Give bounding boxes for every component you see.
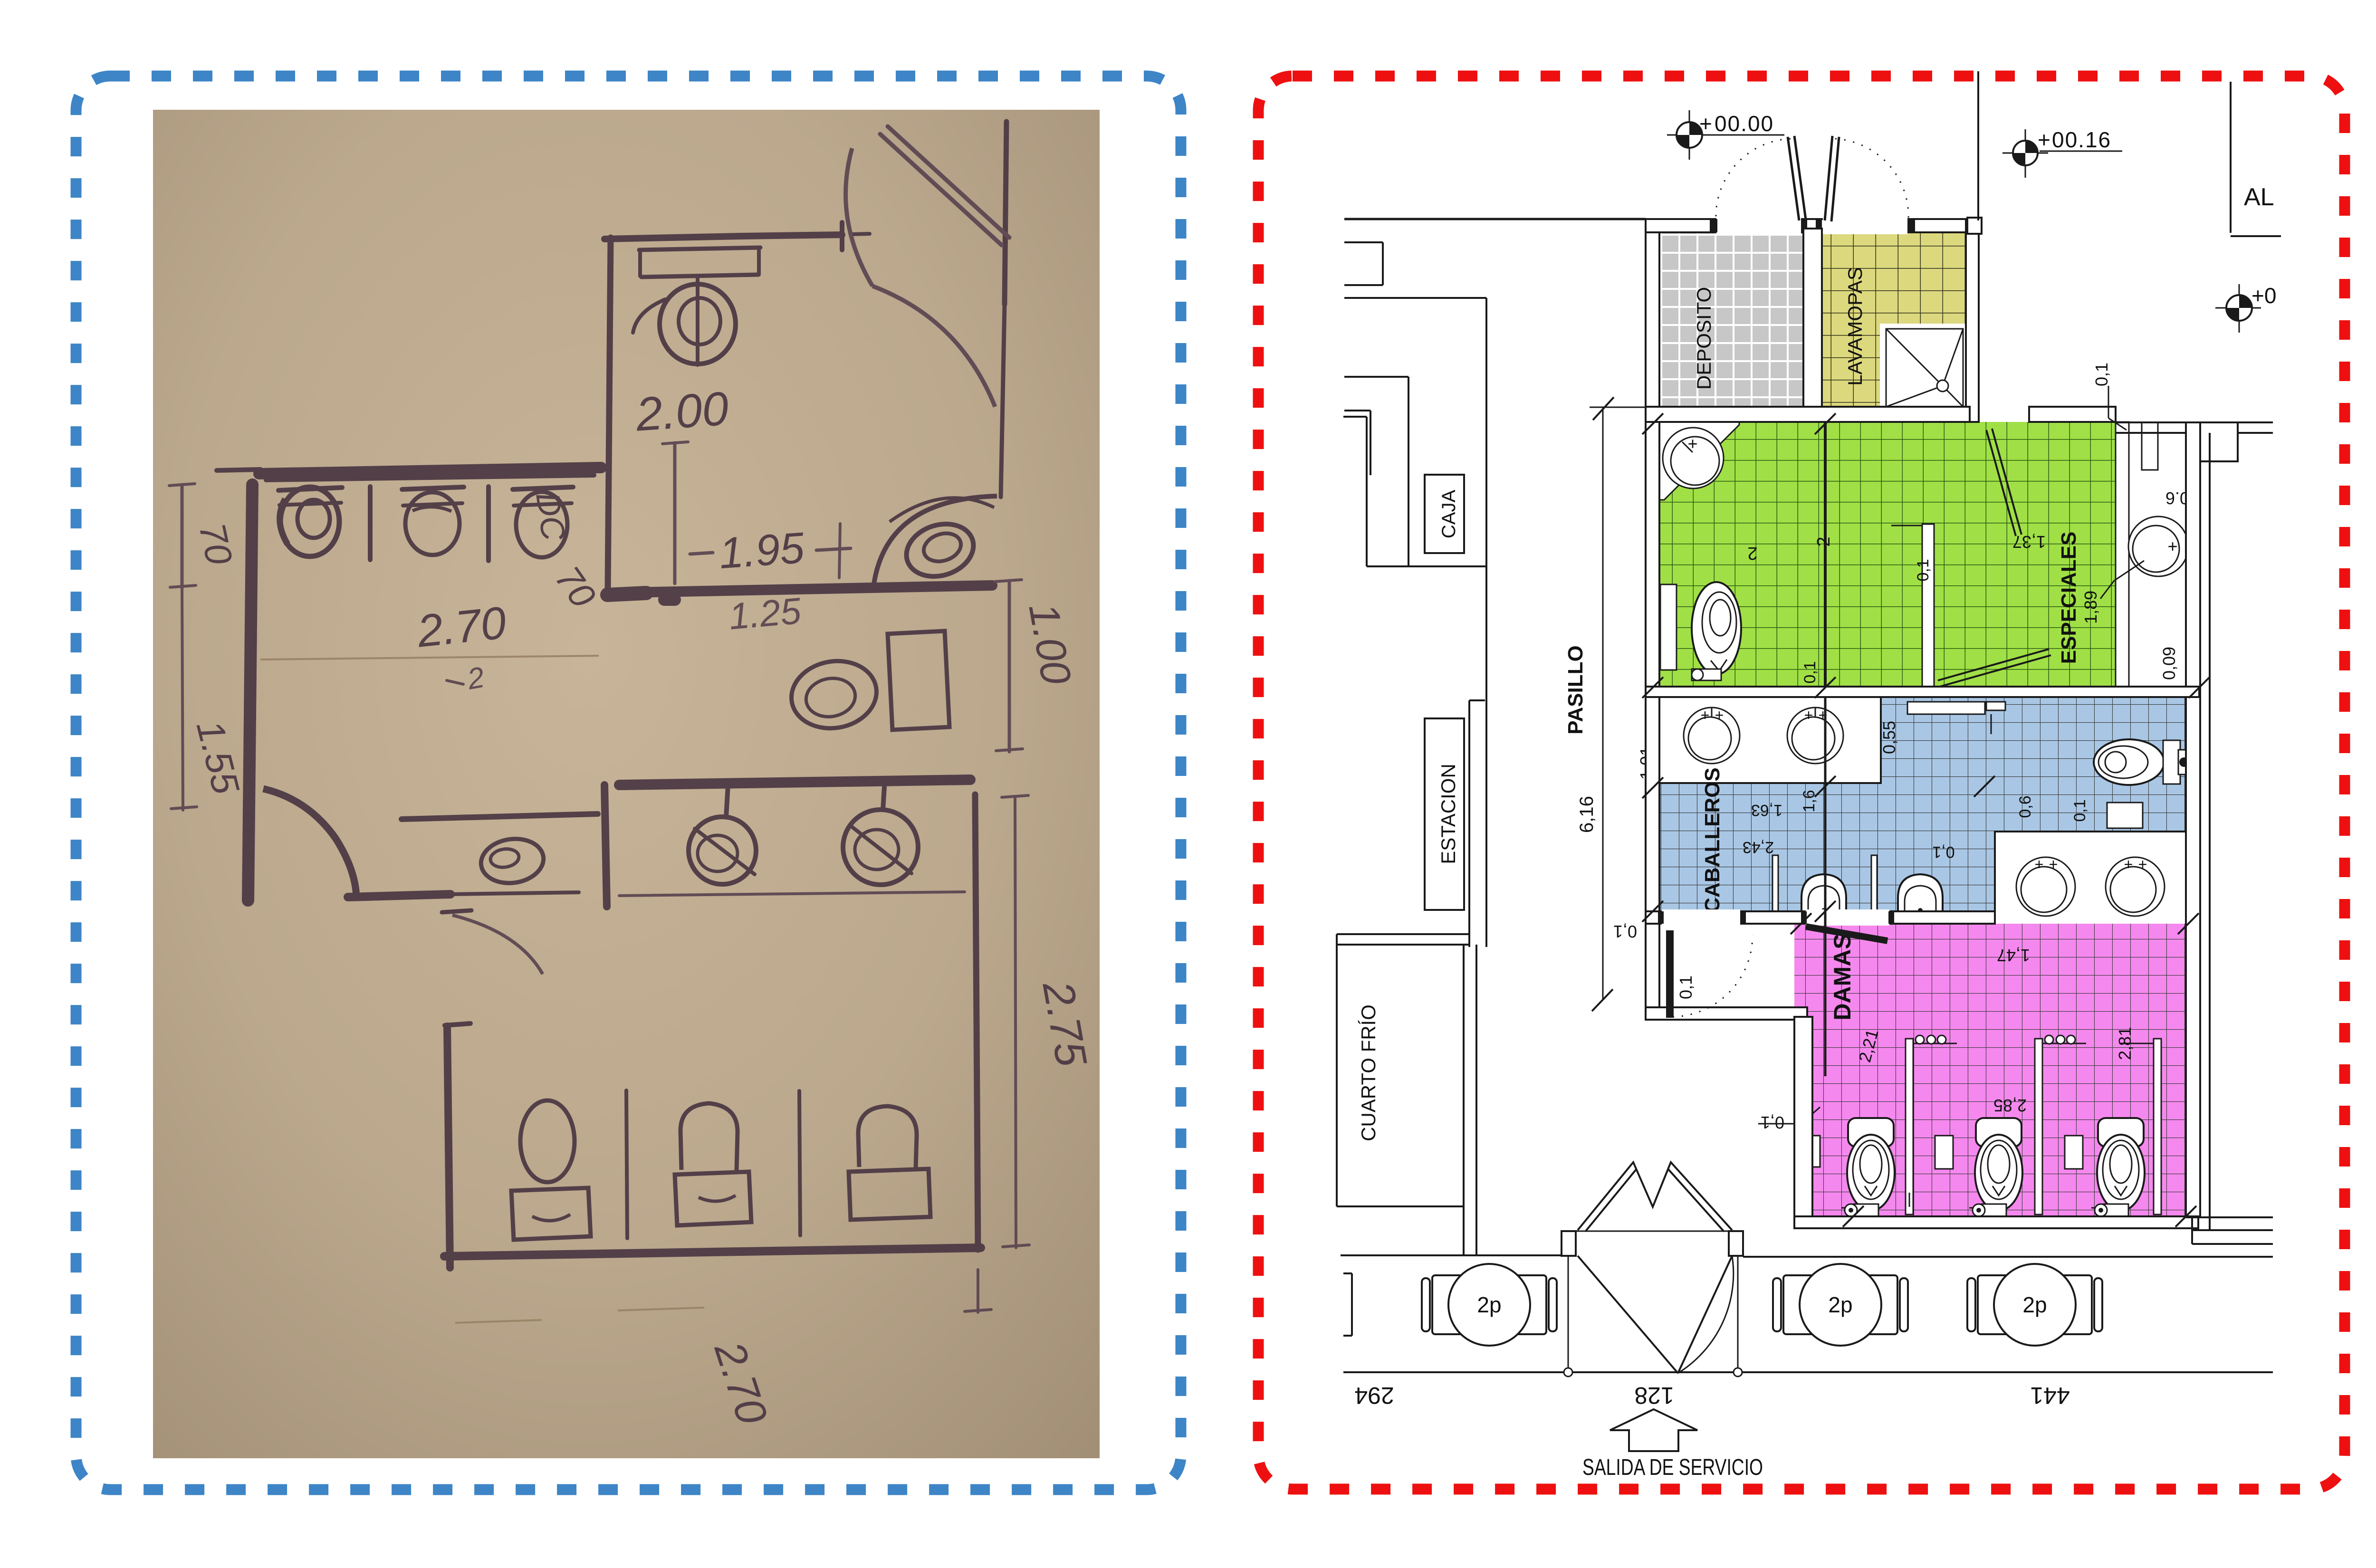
svg-text:ESPECIALES: ESPECIALES — [2057, 532, 2080, 664]
svg-text:2.70: 2.70 — [414, 597, 508, 657]
svg-text:+: + — [2035, 856, 2044, 873]
svg-text:0,1: 0,1 — [2092, 363, 2111, 386]
svg-text:+: + — [2167, 536, 2177, 556]
svg-text:DAMAS: DAMAS — [1829, 933, 1856, 1020]
svg-text:DEPOSITO: DEPOSITO — [1693, 287, 1715, 390]
svg-text:ESTACION: ESTACION — [1437, 764, 1459, 864]
svg-text:2: 2 — [1747, 543, 1757, 563]
svg-text:0,1: 0,1 — [2071, 799, 2089, 822]
svg-text:2,43: 2,43 — [1743, 838, 1774, 856]
svg-text:1.25: 1.25 — [727, 590, 803, 638]
svg-text:1,63: 1,63 — [1751, 801, 1782, 819]
svg-text:0,1: 0,1 — [1932, 843, 1954, 861]
svg-text:+: + — [2049, 856, 2058, 873]
svg-text:CUARTO FRÍO: CUARTO FRÍO — [1357, 1004, 1380, 1141]
svg-text:+: + — [2138, 856, 2147, 873]
svg-text:1,89: 1,89 — [2081, 591, 2100, 624]
svg-text:+: + — [2124, 856, 2133, 873]
svg-text:00.16: 00.16 — [2052, 127, 2111, 152]
svg-text:DC: DC — [529, 490, 572, 543]
svg-text:2: 2 — [1814, 536, 1834, 546]
svg-text:00.00: 00.00 — [1715, 111, 1774, 136]
svg-text:0,1: 0,1 — [1801, 661, 1819, 683]
svg-text:70: 70 — [191, 519, 240, 568]
svg-text:441: 441 — [2030, 1382, 2069, 1409]
svg-text:+: + — [1715, 707, 1724, 724]
svg-text:0,55: 0,55 — [1879, 721, 1899, 754]
svg-text:AL: AL — [2244, 183, 2274, 211]
svg-text:+: + — [1804, 707, 1813, 724]
svg-text:+0: +0 — [2251, 283, 2276, 308]
svg-text:+: + — [1687, 434, 1697, 453]
svg-text:2,85: 2,85 — [1993, 1096, 2027, 1115]
svg-text:2p: 2p — [2022, 1292, 2047, 1317]
svg-text:1,6: 1,6 — [1800, 790, 1818, 812]
svg-text:128: 128 — [1634, 1382, 1674, 1409]
svg-text:2.00: 2.00 — [634, 382, 730, 441]
svg-text:6,16: 6,16 — [1576, 796, 1597, 833]
svg-text:+: + — [1701, 707, 1710, 724]
svg-text:0,1: 0,1 — [1761, 1113, 1784, 1132]
svg-text:1,37: 1,37 — [2012, 532, 2046, 552]
svg-text:SALIDA DE SERVICIO: SALIDA DE SERVICIO — [1582, 1455, 1763, 1480]
svg-text:0,1: 0,1 — [1914, 559, 1932, 581]
svg-text:PASILLO: PASILLO — [1564, 645, 1587, 734]
svg-text:0,1: 0,1 — [1676, 975, 1696, 999]
svg-text:2p: 2p — [1828, 1292, 1852, 1317]
svg-text:0,09: 0,09 — [2159, 647, 2179, 680]
svg-text:CABALLEROS: CABALLEROS — [1701, 767, 1724, 913]
svg-text:LAVAMOPAS: LAVAMOPAS — [1844, 267, 1866, 386]
svg-text:+: + — [1699, 111, 1712, 136]
svg-text:0,1: 0,1 — [1613, 922, 1637, 941]
svg-text:2,81: 2,81 — [2115, 1027, 2135, 1060]
svg-text:CAJA: CAJA — [1438, 490, 1459, 539]
svg-text:1.95: 1.95 — [718, 524, 806, 578]
svg-text:1,47: 1,47 — [1997, 946, 2030, 965]
svg-text:2p: 2p — [1477, 1292, 1501, 1317]
svg-text:294: 294 — [1354, 1382, 1394, 1409]
svg-text:+: + — [2038, 127, 2050, 152]
svg-text:0,6: 0,6 — [2016, 795, 2034, 818]
